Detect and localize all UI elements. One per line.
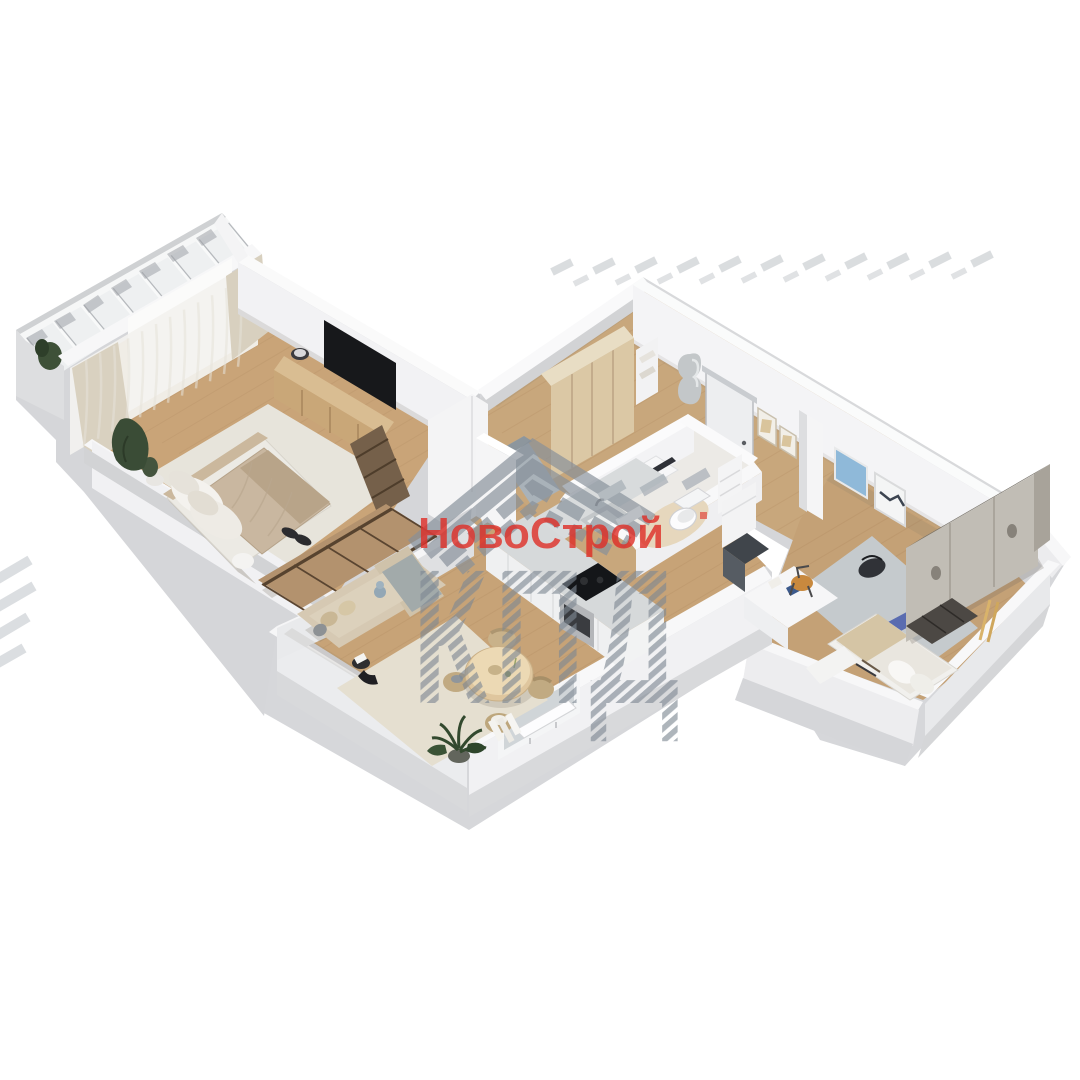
svg-text:КПД: КПД bbox=[412, 531, 685, 745]
svg-text:НовоСтрой: НовоСтрой bbox=[418, 509, 664, 558]
